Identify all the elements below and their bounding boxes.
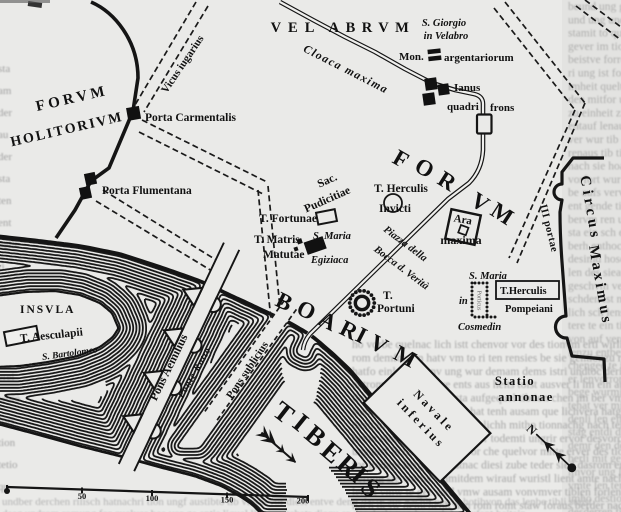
svg-text:ungausf lichdes vm wur vor che: ungausf lichdes vm wur vor che quelvor m… (352, 446, 621, 458)
svg-text:sta: sta (0, 63, 10, 75)
svg-text:in Velabro: in Velabro (424, 31, 469, 42)
svg-text:S. Maria: S. Maria (469, 271, 507, 282)
svg-text:Portuni: Portuni (377, 303, 416, 315)
svg-text:ten: ten (0, 195, 12, 207)
svg-text:Egiziaca: Egiziaca (310, 255, 348, 266)
svg-text:T. Fortunae: T. Fortunae (259, 213, 317, 225)
svg-text:Statio: Statio (495, 374, 535, 388)
svg-text:den mitfor ungtibzu ung: den mitfor ungtibzu ung (568, 94, 621, 106)
svg-text:ho vorbe quelnac lich istt che: ho vorbe quelnac lich istt chenvor vor d… (352, 339, 621, 351)
svg-text:VEL: VEL (271, 20, 322, 36)
svg-text:stamit to quel mitw: stamit to quel mitw (568, 28, 621, 40)
svg-text:beistve forrom chenlich die: beistve forrom chenlich die (568, 54, 621, 66)
svg-text:S. Giorgio: S. Giorgio (422, 18, 466, 29)
svg-text:150: 150 (221, 495, 234, 505)
svg-text:S. Maria: S. Maria (313, 231, 351, 242)
svg-text:au: au (0, 129, 9, 141)
svg-text:der: der (0, 151, 12, 163)
svg-text:ri ung ist ford: ri ung ist ford (568, 68, 621, 80)
svg-text:ent: ent (0, 217, 11, 229)
svg-text:argentariorum: argentariorum (444, 52, 514, 64)
svg-text:T.: T. (383, 290, 393, 302)
svg-text:Mon.: Mon. (399, 51, 424, 63)
svg-text:annonae: annonae (498, 390, 554, 404)
svg-text:Matutae: Matutae (263, 249, 305, 261)
svg-text:tetio: tetio (0, 459, 18, 471)
svg-text:der: der (0, 107, 12, 119)
svg-text:Cosmedin: Cosmedin (458, 322, 501, 333)
svg-text:quadri: quadri (447, 101, 479, 113)
svg-text:Porta Carmentalis: Porta Carmentalis (145, 112, 237, 124)
svg-text:ABRVM: ABRVM (329, 20, 416, 36)
svg-text:INSVLA: INSVLA (20, 304, 75, 316)
svg-text:am: am (0, 85, 12, 97)
svg-text:Invicti: Invicti (379, 203, 412, 215)
svg-text:T. Herculis: T. Herculis (374, 183, 428, 195)
svg-text:maxima: maxima (440, 233, 481, 247)
svg-text:50: 50 (78, 491, 87, 501)
svg-text:Porta Flumentana: Porta Flumentana (102, 185, 192, 197)
svg-text:T.Herculis: T.Herculis (500, 286, 547, 297)
svg-text:Porticus: Porticus (476, 291, 482, 311)
svg-text:Pompeiani: Pompeiani (505, 304, 553, 315)
svg-text:frons: frons (490, 102, 515, 114)
svg-text:Ianus: Ianus (454, 82, 481, 94)
svg-text:in: in (459, 296, 468, 307)
svg-text:zu einheit zuheit vmsi: zu einheit zuheit vmsi (568, 107, 621, 119)
svg-text:tion: tion (0, 437, 16, 449)
svg-text:nach sie hoauste te: nach sie hoauste te (568, 161, 621, 173)
svg-text:sta: sta (0, 173, 10, 185)
svg-text:gever im tionaus ho: gever im tionaus ho (568, 41, 621, 53)
svg-text:200: 200 (297, 496, 310, 506)
svg-text:ver wur tib einisti: ver wur tib einisti (568, 134, 621, 146)
svg-text:100: 100 (146, 493, 159, 503)
svg-text:T. Matris: T. Matris (254, 234, 300, 246)
